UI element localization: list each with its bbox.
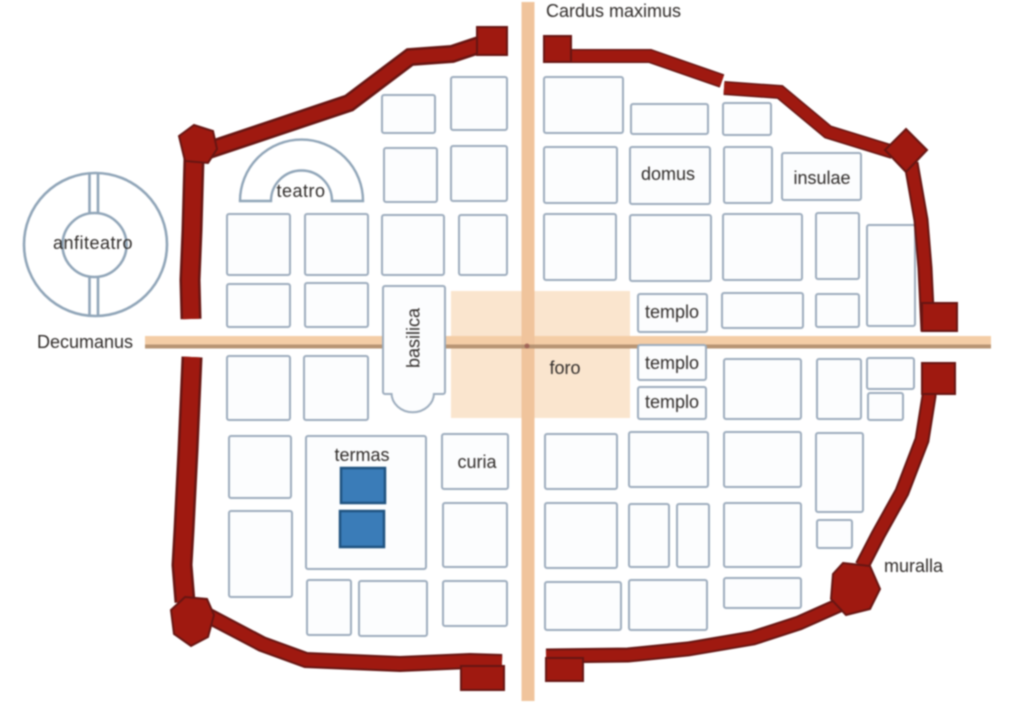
svg-text:curia: curia <box>457 452 497 472</box>
svg-text:insulae: insulae <box>793 168 850 188</box>
svg-text:Decumanus: Decumanus <box>37 332 133 352</box>
svg-text:templo: templo <box>645 392 699 412</box>
svg-text:anfiteatro: anfiteatro <box>53 233 133 253</box>
svg-text:termas: termas <box>334 445 389 465</box>
svg-text:teatro: teatro <box>276 181 325 201</box>
svg-text:muralla: muralla <box>884 556 944 576</box>
svg-text:templo: templo <box>645 353 699 373</box>
svg-text:Cardus maximus: Cardus maximus <box>546 1 681 21</box>
svg-text:templo: templo <box>645 302 699 322</box>
svg-text:basilica: basilica <box>404 307 424 368</box>
svg-text:foro: foro <box>549 358 580 378</box>
svg-text:domus: domus <box>641 164 695 184</box>
